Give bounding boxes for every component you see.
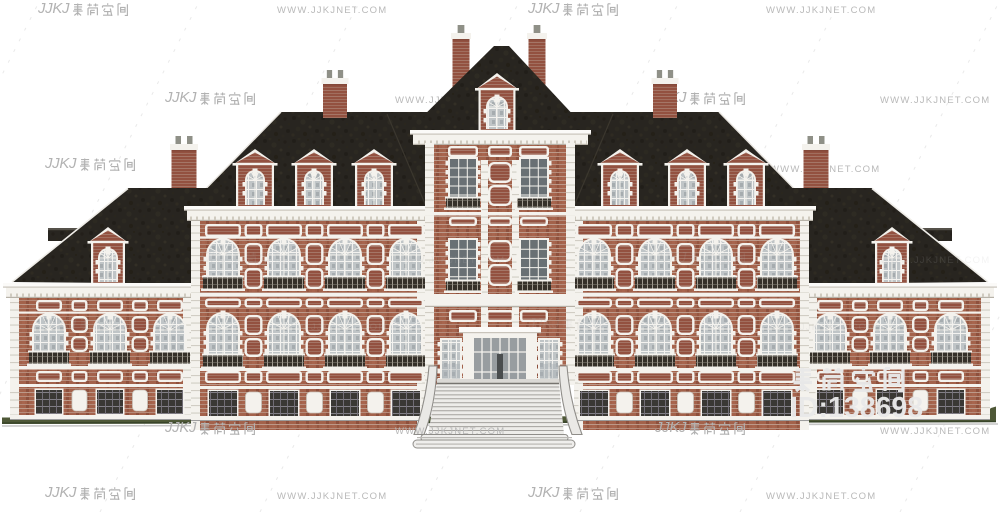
svg-text:JJKJ: JJKJ	[195, 249, 228, 266]
svg-text:WWW.JJKJNET.COM: WWW.JJKJNET.COM	[880, 255, 990, 266]
svg-text:JJKJ: JJKJ	[527, 484, 560, 501]
svg-text:JJKJ: JJKJ	[164, 89, 197, 106]
svg-text:WWW.JJKJNET.COM: WWW.JJKJNET.COM	[880, 426, 990, 437]
svg-text:WWW.JJKJNET.COM: WWW.JJKJNET.COM	[880, 95, 990, 106]
svg-text:JJKJ: JJKJ	[44, 155, 77, 172]
svg-text:WWW.JJKJNET.COM: WWW.JJKJNET.COM	[766, 5, 876, 16]
svg-text:JJKJ: JJKJ	[527, 315, 560, 332]
svg-text:WWW.JJKJNET.COM: WWW.JJKJNET.COM	[766, 322, 876, 333]
svg-text:WWW.JJKJNET.COM: WWW.JJKJNET.COM	[395, 255, 505, 266]
svg-text:ID:138698: ID:138698	[790, 392, 923, 424]
svg-text:WWW.JJKJNET.COM: WWW.JJKJNET.COM	[395, 426, 505, 437]
svg-text:WWW.JJKJNET.COM: WWW.JJKJNET.COM	[277, 322, 387, 333]
svg-text:JJKJ: JJKJ	[654, 419, 687, 436]
svg-text:WWW.JJKJNET.COM: WWW.JJKJNET.COM	[766, 491, 876, 502]
svg-text:JJKJ: JJKJ	[164, 419, 197, 436]
svg-text:WWW.JJKJNET.COM: WWW.JJKJNET.COM	[277, 491, 387, 502]
svg-text:WWW.JJKJNET.COM: WWW.JJKJNET.COM	[277, 5, 387, 16]
svg-text:JJKJ: JJKJ	[527, 0, 560, 17]
svg-text:JJKJ: JJKJ	[44, 315, 77, 332]
svg-text:JJKJ: JJKJ	[37, 0, 70, 17]
svg-text:JJKJ: JJKJ	[654, 249, 687, 266]
svg-text:JJKJ: JJKJ	[44, 484, 77, 501]
